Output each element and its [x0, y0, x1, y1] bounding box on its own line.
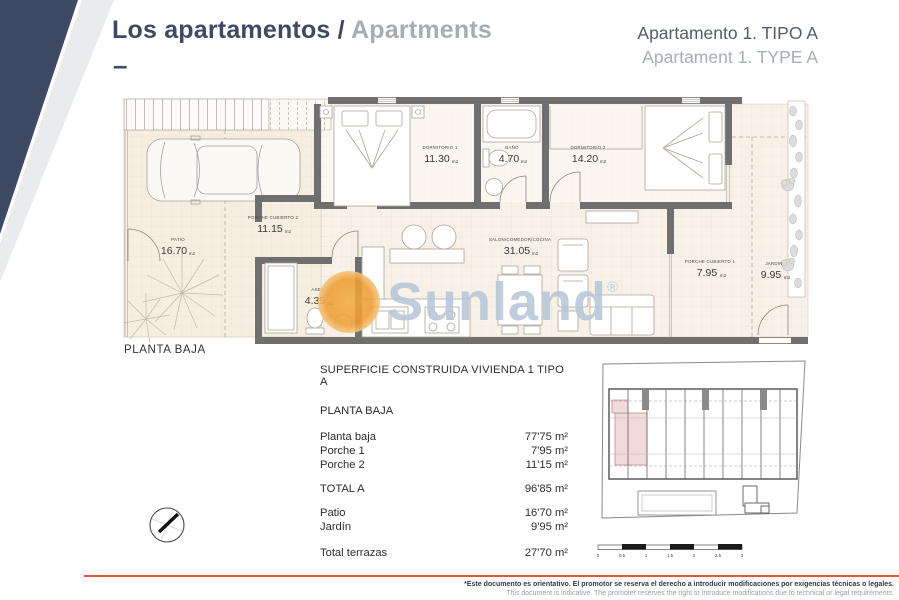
surface-table-section: PLANTA BAJA — [320, 405, 568, 417]
room-unit: m2 — [532, 251, 539, 256]
row-label: Planta baja — [320, 430, 376, 444]
room-label-porche1: PORCHE CUBIERTO 1 — [685, 259, 736, 264]
table-row: Porche 211'15 m² — [320, 458, 568, 472]
table-row: Patio16'70 m² — [320, 506, 568, 520]
row-value: 96'85 m² — [525, 482, 568, 496]
room-label-bano: BAÑO — [505, 145, 519, 150]
watermark-brand: Sunland — [387, 272, 607, 332]
disclaimer-en: This document is indicative. The promote… — [464, 590, 894, 599]
room-unit: m2 — [189, 251, 196, 256]
site-building — [609, 389, 797, 479]
room-unit: m2 — [784, 275, 791, 280]
room-unit: m2 — [600, 159, 607, 164]
apartment-subtitle: Apartamento 1. TIPO A Apartament 1. TYPE… — [637, 21, 818, 69]
scale-label: 2.5 — [715, 553, 721, 558]
room-label-jardin: JARDIN — [765, 261, 782, 266]
room-area-bano: 4.70 — [499, 153, 520, 165]
compass-icon — [146, 503, 190, 547]
site-pool — [638, 491, 716, 515]
room-unit: m2 — [285, 229, 292, 234]
room-unit: m2 — [720, 273, 727, 278]
subtitle-line2: Apartament 1. TYPE A — [637, 45, 818, 69]
room-area-dormitorio2: 14.20 — [572, 153, 598, 165]
row-value: 7'95 m² — [531, 444, 568, 458]
corner-gray-band — [0, 0, 114, 282]
row-label: Porche 2 — [320, 458, 365, 472]
plan-caption: PLANTA BAJA — [124, 344, 206, 356]
scale-bar: 0 0.5 1 1.5 2 2.5 3 — [597, 544, 744, 558]
room-area-porche1: 7.95 — [697, 267, 718, 279]
table-row-terraces: Total terrazas27'70 m² — [320, 546, 568, 560]
scale-label: 1.5 — [667, 553, 673, 558]
row-value: 77'75 m² — [525, 430, 568, 444]
room-unit: m2 — [452, 159, 459, 164]
room-label-salon: SALON/COMEDOR/COCINA — [489, 237, 551, 242]
room-area-dormitorio1: 11.30 — [424, 153, 450, 165]
row-label: TOTAL A — [320, 482, 365, 496]
site-plan: 0 0.5 1 1.5 2 2.5 3 — [593, 356, 893, 568]
room-label-patio: PATIO — [171, 237, 185, 242]
room-area-porche2: 11.15 — [257, 223, 283, 235]
subtitle-line1: Apartamento 1. TIPO A — [637, 21, 818, 45]
room-area-patio: 16.70 — [161, 245, 187, 257]
table-row: Planta baja77'75 m² — [320, 430, 568, 444]
row-label: Porche 1 — [320, 444, 365, 458]
room-unit: m2 — [521, 159, 528, 164]
table-row: Jardín9'95 m² — [320, 520, 568, 534]
surface-table: SUPERFICIE CONSTRUIDA VIVIENDA 1 TIPO A … — [320, 364, 568, 560]
row-label: Total terrazas — [320, 546, 387, 560]
watermark-text: Sunland® — [387, 271, 619, 333]
highlighted-unit — [615, 413, 647, 465]
page-title-primary: Los apartamentos / — [112, 16, 345, 44]
scale-label: 0 — [597, 553, 600, 558]
row-label: Jardín — [320, 520, 351, 534]
row-value: 9'95 m² — [531, 520, 568, 534]
corner-navy-band — [0, 0, 78, 234]
title-dash: – — [113, 50, 127, 81]
watermark: Sunland® — [318, 271, 619, 333]
footer-accent-line — [84, 575, 899, 577]
highlighted-unit-upper — [612, 400, 628, 413]
sun-logo-icon — [318, 271, 380, 333]
car-top-view — [147, 136, 300, 204]
stairs — [124, 99, 331, 130]
site-outbuilding — [743, 486, 769, 513]
page-title-secondary: Apartments — [351, 16, 492, 44]
row-value: 27'70 m² — [525, 546, 568, 560]
disclaimer-es: *Este documento es orientativo. El promo… — [464, 581, 894, 590]
table-row: Porche 17'95 m² — [320, 444, 568, 458]
scale-label: 3 — [741, 553, 744, 558]
surface-table-title: SUPERFICIE CONSTRUIDA VIVIENDA 1 TIPO A — [320, 364, 568, 388]
scale-label: 1 — [645, 553, 648, 558]
watermark-reg-mark: ® — [607, 279, 619, 296]
room-label-porche2: PORCHE CUBIERTO 2 — [248, 215, 299, 220]
row-value: 16'70 m² — [525, 506, 568, 520]
room-area-salon: 31.05 — [504, 245, 530, 257]
room-area-jardin: 9.95 — [761, 269, 782, 281]
room-label-dormitorio2: DORMITORIO 2 — [570, 145, 605, 150]
scale-label: 0.5 — [619, 553, 625, 558]
room-label-dormitorio1: DORMITORIO 1 — [422, 145, 457, 150]
row-value: 11'15 m² — [526, 458, 568, 472]
footer-disclaimer: *Este documento es orientativo. El promo… — [464, 581, 894, 598]
row-label: Patio — [320, 506, 346, 520]
page-title: Los apartamentos / Apartments — [112, 16, 492, 45]
table-row-total: TOTAL A96'85 m² — [320, 482, 568, 496]
scale-label: 2 — [693, 553, 696, 558]
